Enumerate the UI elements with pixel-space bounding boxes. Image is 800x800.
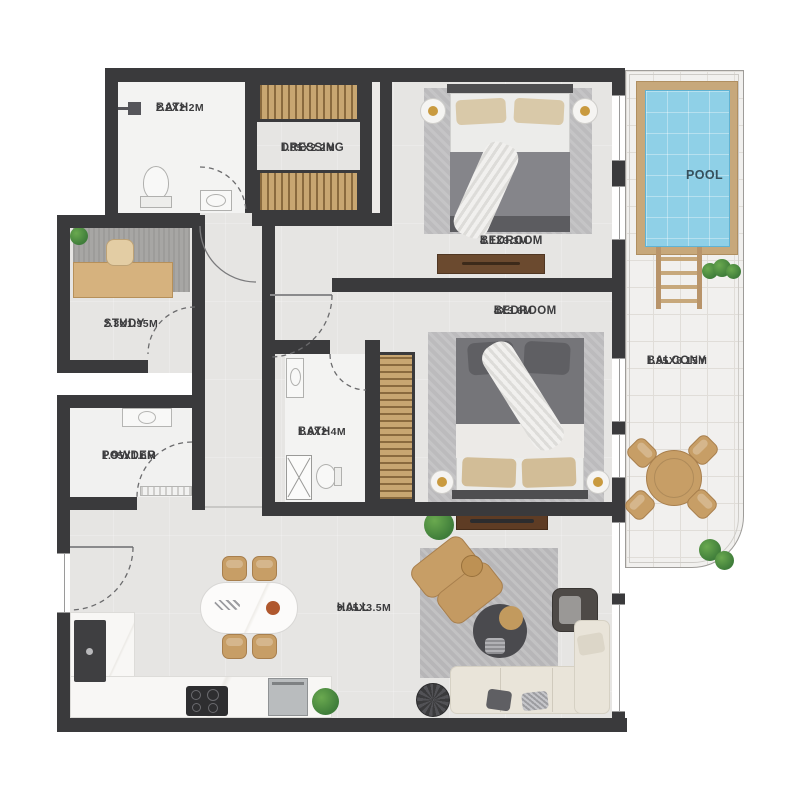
wall-segment xyxy=(57,395,205,408)
wardrobe-icon xyxy=(377,352,415,502)
room-name: BATH xyxy=(156,101,189,117)
wall-segment xyxy=(380,82,392,226)
window xyxy=(612,604,625,712)
room-name: POWDER xyxy=(102,449,156,465)
burner xyxy=(207,689,219,701)
ladder-rung xyxy=(661,285,697,289)
nightstand-lamp-icon xyxy=(420,98,446,124)
wardrobe-icon xyxy=(257,170,360,213)
balcony-table-ring xyxy=(654,458,694,498)
room-name: BATH xyxy=(298,425,331,441)
toilet-icon xyxy=(143,166,169,200)
room-label-hall: HALL 9.05X3.5M xyxy=(337,601,391,615)
sofa-pillow xyxy=(486,688,513,711)
room-label-bedroom-2: BEDROOM 4X3.6M xyxy=(494,304,533,318)
nightstand-lamp-icon xyxy=(572,98,598,124)
burner xyxy=(192,703,201,712)
bed-sheet xyxy=(456,424,584,458)
round-chair-icon xyxy=(416,683,450,717)
bed-headboard xyxy=(452,490,588,499)
wardrobe-icon xyxy=(257,82,360,122)
wall-segment xyxy=(262,502,625,516)
kitchen-sink-knob xyxy=(86,648,93,655)
dresser-handle xyxy=(462,262,520,265)
room-name: STUDY xyxy=(104,317,145,333)
room-label-bath-1: BATH 2.2X2.2M xyxy=(156,101,204,115)
coffee-table-tray xyxy=(499,606,523,630)
wall-segment xyxy=(195,360,205,373)
room-name: HALL xyxy=(337,601,369,617)
wall-segment xyxy=(57,360,148,373)
fridge-handle xyxy=(272,682,304,685)
planter-icon xyxy=(702,257,742,287)
toilet-tank xyxy=(140,196,172,208)
wall-recess-strip xyxy=(372,82,380,213)
pillow-icon xyxy=(462,457,517,488)
vanity-basin xyxy=(290,368,301,386)
shower-tray-icon xyxy=(286,455,312,500)
wall-segment xyxy=(105,68,118,226)
bed-headboard xyxy=(447,84,573,93)
burner xyxy=(191,690,201,700)
wall-segment xyxy=(57,718,627,732)
desk-chair-icon xyxy=(106,239,134,266)
corridor-threshold xyxy=(205,506,262,508)
wall-segment xyxy=(57,497,137,510)
table-bowl xyxy=(266,601,280,615)
plant-icon xyxy=(312,688,339,715)
toilet-tank xyxy=(334,467,342,486)
table-decor xyxy=(214,600,240,610)
sink-basin xyxy=(206,194,226,207)
pillow-icon xyxy=(513,98,564,126)
window xyxy=(612,95,625,161)
dining-chair-icon xyxy=(252,634,277,659)
balcony-door xyxy=(612,522,625,594)
plant-icon xyxy=(715,551,734,570)
soundbar xyxy=(470,519,534,523)
dining-chair-icon xyxy=(252,556,277,581)
exterior-notch-top-left xyxy=(57,68,105,215)
sofa-cushion-line xyxy=(552,668,553,712)
room-label-balcony: BALCONY 1.85X8.15M xyxy=(647,354,708,368)
room-label-powder: POWDER 1.95X1.6M xyxy=(102,449,156,463)
shower-head-icon xyxy=(128,102,141,115)
dining-chair-icon xyxy=(222,634,247,659)
wall-segment xyxy=(192,373,205,395)
window xyxy=(612,434,625,478)
room-name: POOL xyxy=(686,167,723,184)
exterior-gap-left xyxy=(57,373,192,395)
nightstand-lamp-icon xyxy=(586,470,610,494)
ladder-rung xyxy=(661,271,697,275)
window xyxy=(57,553,70,613)
side-table-icon xyxy=(461,555,483,577)
wall-segment xyxy=(365,340,377,516)
powder-radiator-icon xyxy=(140,486,192,496)
room-name: DRESSING xyxy=(281,141,344,157)
room-name: BALCONY xyxy=(647,354,707,370)
wall-segment xyxy=(105,68,625,82)
room-name: BEDROOM xyxy=(480,234,543,250)
room-label-bath-2: BATH 1.6X2.4M xyxy=(298,425,346,439)
pillow-icon xyxy=(522,457,577,488)
shower-arm xyxy=(118,107,128,110)
pool-ladder-icon xyxy=(656,247,702,309)
wall-segment xyxy=(332,278,625,292)
room-label-study: STUDY 2.3X1.95M xyxy=(104,317,158,331)
room-label-dressing: DRESSING 1.85X2.2M xyxy=(281,141,335,155)
wall-segment xyxy=(360,82,372,213)
ladder-rung xyxy=(661,257,697,261)
powder-sink-basin xyxy=(138,411,156,424)
nightstand-lamp-icon xyxy=(430,470,454,494)
pillow-icon xyxy=(455,98,506,126)
wall-segment xyxy=(245,82,257,213)
wall-segment xyxy=(262,222,275,515)
plant-icon xyxy=(70,227,88,245)
room-label-bedroom-1: BEDROOM 4.1X3.3M xyxy=(480,234,528,248)
burner xyxy=(208,703,218,713)
sofa-pillow xyxy=(521,691,549,712)
bed-blanket-lump xyxy=(523,341,571,375)
wall-segment xyxy=(57,215,70,373)
pouf-icon xyxy=(485,638,505,654)
room-name: BEDROOM xyxy=(494,304,557,320)
wall-segment xyxy=(192,395,205,510)
wall-segment xyxy=(57,215,205,228)
toilet-icon xyxy=(316,464,336,489)
dining-chair-icon xyxy=(222,556,247,581)
wall-segment xyxy=(192,215,205,373)
floor-plan: BATH 2.2X2.2M DRESSING 1.85X2.2M BEDROOM… xyxy=(0,0,800,800)
plant-icon xyxy=(726,264,741,279)
window xyxy=(612,186,625,240)
desk-icon xyxy=(73,262,173,298)
wall-segment xyxy=(57,510,70,732)
wall-segment xyxy=(57,395,70,510)
wall-segment xyxy=(275,340,330,354)
window xyxy=(612,358,625,422)
ladder-rung xyxy=(661,299,697,303)
balcony-area xyxy=(625,70,744,568)
